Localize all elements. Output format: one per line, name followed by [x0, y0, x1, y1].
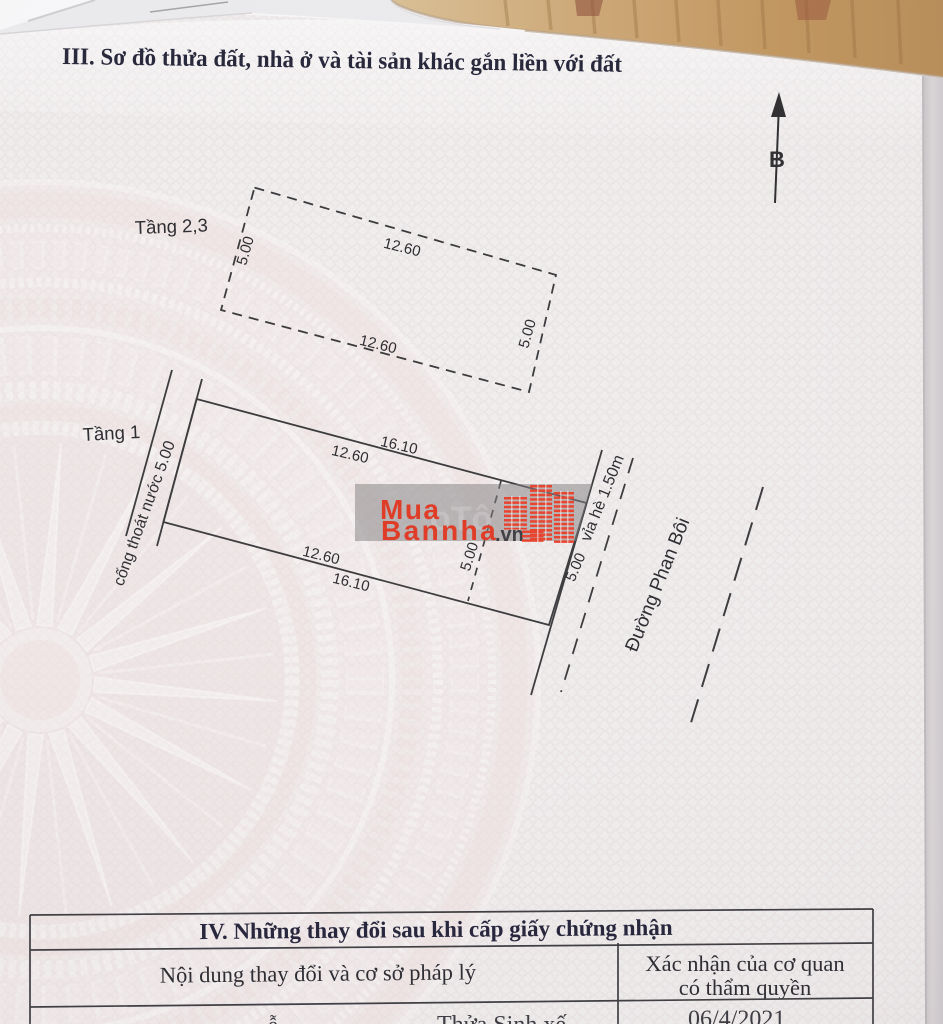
svg-text:Thửa Sinh xế: Thửa Sinh xế: [437, 1012, 567, 1024]
svg-text:Tầng 1: Tầng 1: [82, 421, 141, 445]
svg-text:ễ: ễ: [268, 1012, 278, 1024]
svg-text:có thẩm quyền: có thẩm quyền: [679, 975, 811, 1000]
svg-text:IV. Những thay đổi sau khi cấp: IV. Những thay đổi sau khi cấp giấy chứn…: [199, 915, 673, 944]
svg-text:B: B: [769, 147, 785, 172]
svg-text:Bannha: Bannha: [381, 515, 498, 546]
svg-text:Xác nhận của cơ quan: Xác nhận của cơ quan: [645, 951, 844, 976]
svg-text:06/4/2021: 06/4/2021: [688, 1007, 785, 1024]
svg-text:Nội dung thay đổi và cơ sở phá: Nội dung thay đổi và cơ sở pháp lý: [160, 959, 477, 987]
svg-text:Tầng 2,3: Tầng 2,3: [134, 214, 208, 238]
